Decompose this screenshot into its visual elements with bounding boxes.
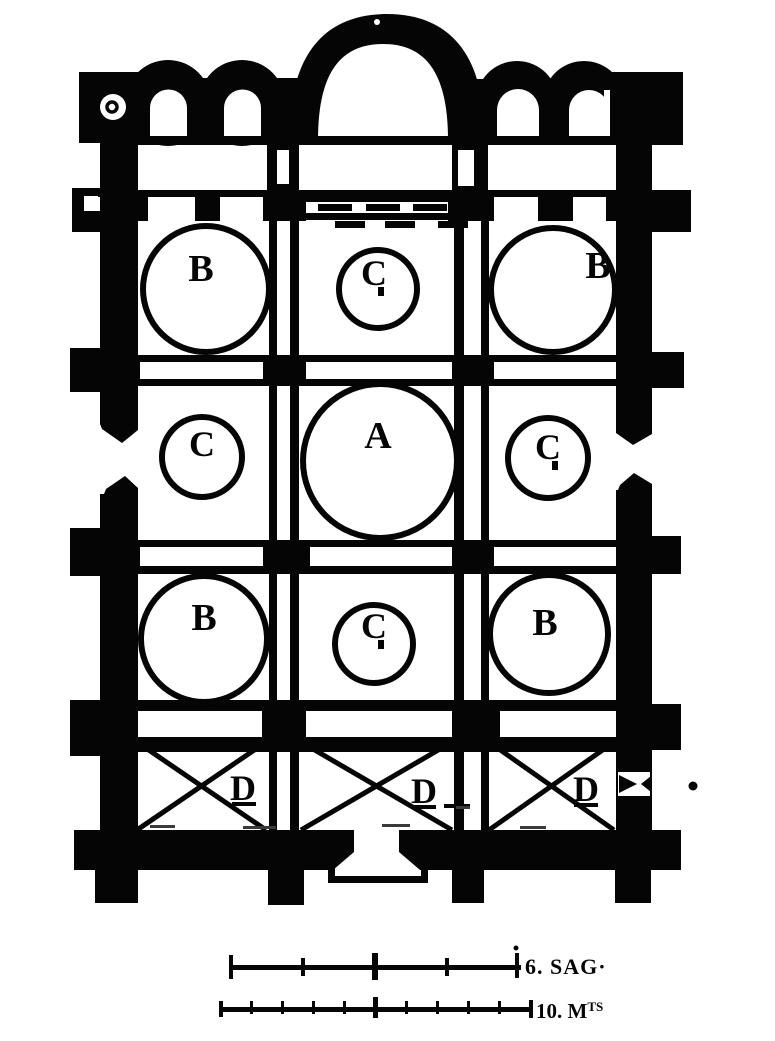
- svg-text:C: C: [189, 424, 215, 464]
- svg-text:B: B: [585, 245, 610, 287]
- svg-text:6. SAG·: 6. SAG·: [525, 954, 607, 979]
- svg-text:B: B: [191, 597, 216, 639]
- svg-text:B: B: [188, 248, 213, 290]
- svg-text:B: B: [532, 602, 557, 644]
- svg-text:A: A: [364, 415, 392, 457]
